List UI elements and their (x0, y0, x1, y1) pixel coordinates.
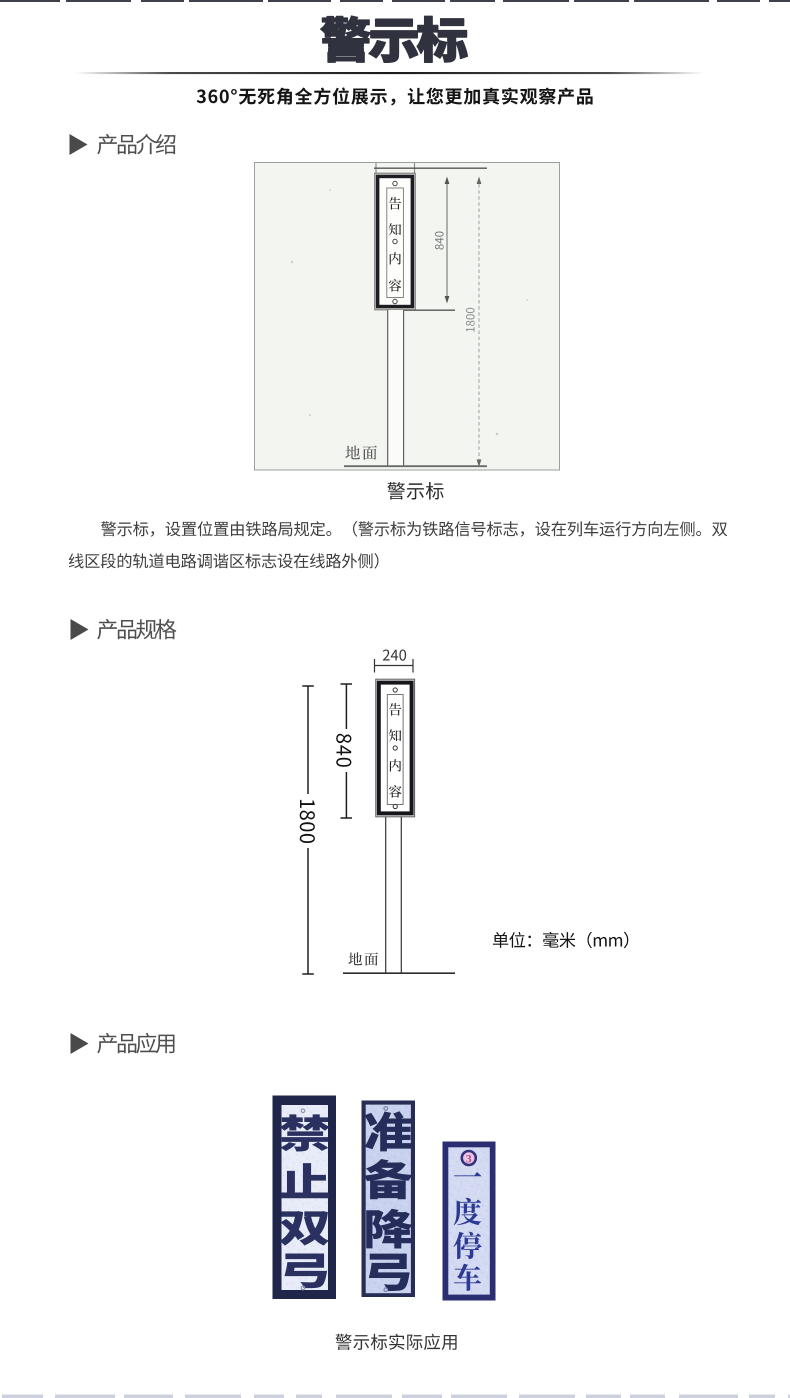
svg-text:3: 3 (466, 1153, 472, 1165)
